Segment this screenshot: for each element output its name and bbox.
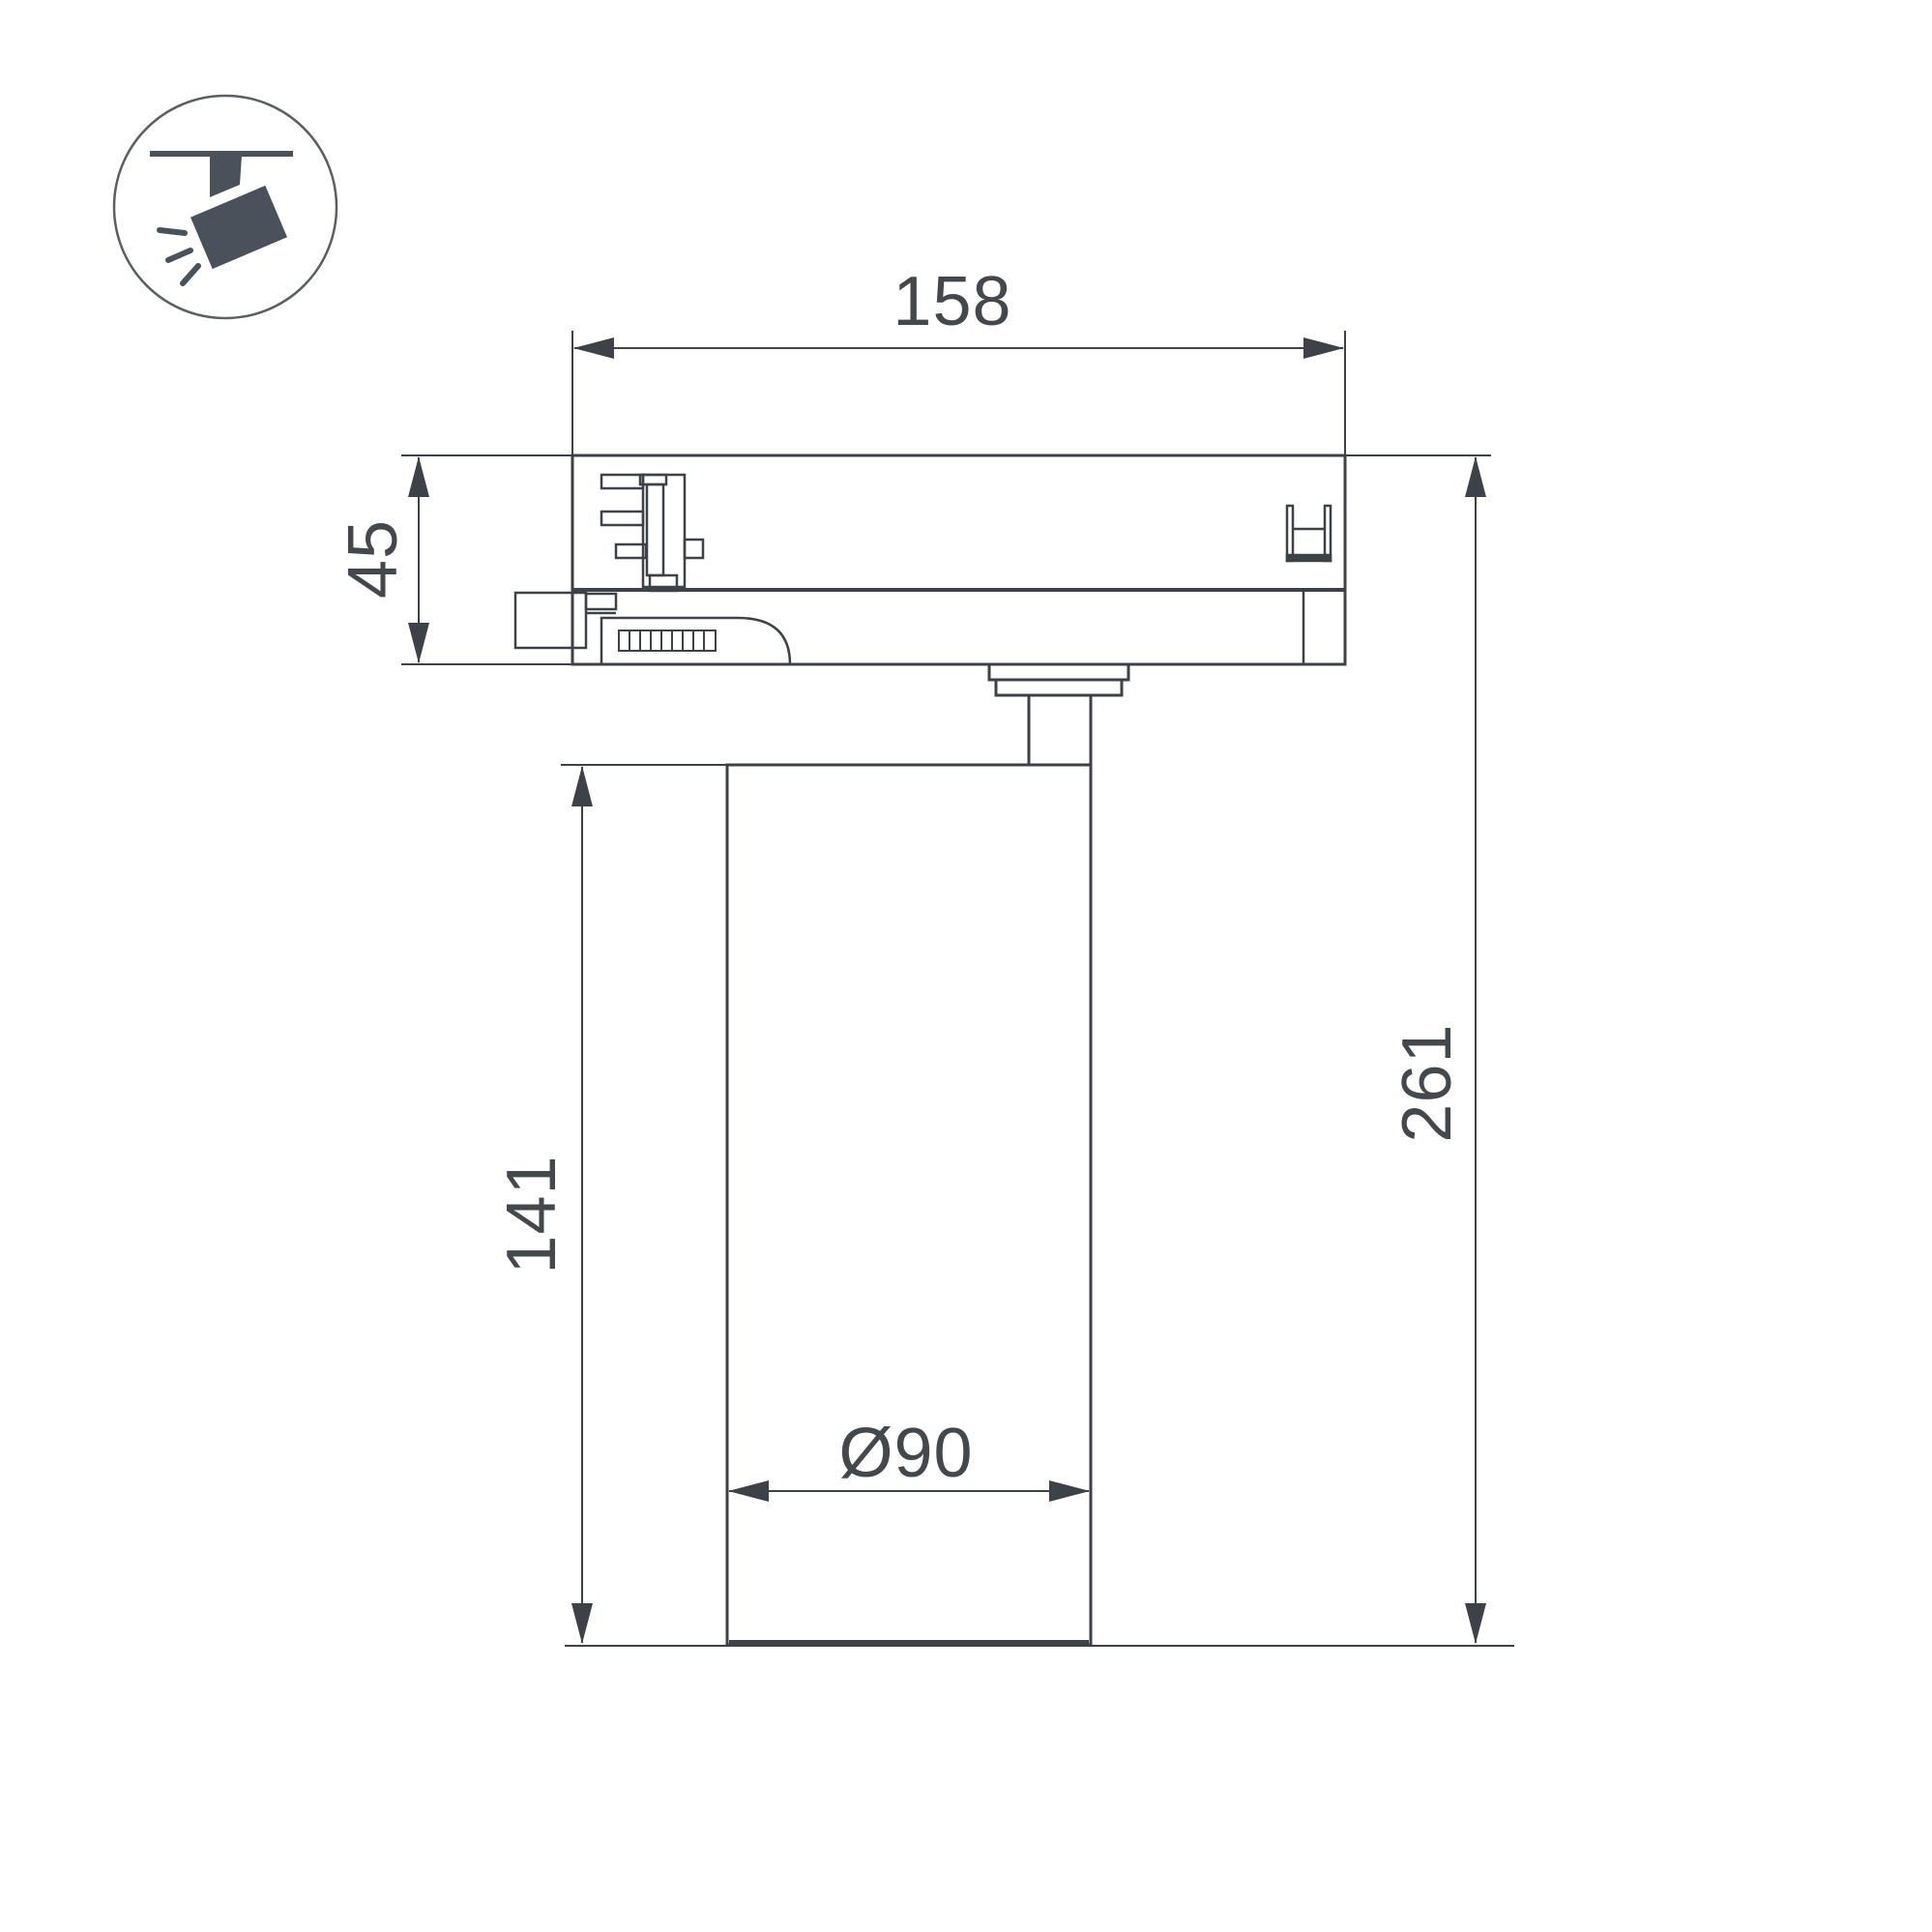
arrowhead-left (573, 337, 614, 359)
contact-prong-middle (601, 512, 643, 525)
arrowhead-right (1303, 337, 1344, 359)
contact-tab-right (685, 540, 703, 558)
arrowhead-down (1465, 1603, 1486, 1644)
contact-rod (647, 484, 663, 575)
mount-bracket (989, 664, 1128, 765)
lamp-body (727, 765, 1091, 1645)
latch-clip (586, 594, 616, 609)
bracket-stem (1029, 695, 1091, 765)
end-clip-left-bar (1287, 506, 1293, 561)
bracket-step-1 (989, 664, 1128, 680)
contact-prong-top (601, 475, 643, 488)
dimension-body-height: 141 (493, 765, 727, 1644)
arrowhead-up (408, 456, 429, 497)
end-clip-bottom-bar (1287, 555, 1331, 561)
end-clip-right-bar (1325, 506, 1331, 561)
lever-grip (619, 630, 716, 651)
dim-label-45: 45 (335, 519, 412, 599)
dimension-overall-height: 261 (1345, 455, 1491, 1644)
dim-label-261: 261 (1389, 1023, 1466, 1142)
bracket-step-2 (996, 680, 1122, 695)
dimension-adapter-width: 158 (572, 263, 1345, 454)
dim-label-diameter: Ø90 (838, 1415, 973, 1492)
dim-label-141: 141 (493, 1155, 571, 1273)
arrowhead-down (408, 623, 429, 663)
track-spotlight-icon (114, 96, 337, 318)
adapter-upper-housing (572, 455, 1345, 590)
latch-block (515, 593, 586, 648)
arrowhead-up (1465, 456, 1486, 497)
drawing-canvas: 158 45 141 261 Ø90 (0, 0, 1932, 1932)
contact-assembly (601, 475, 703, 591)
dim-label-158: 158 (893, 263, 1011, 340)
contact-prong-bottom (616, 544, 646, 558)
arrowhead-up (571, 766, 593, 806)
adapter-lower-band (572, 590, 1345, 664)
arrowhead-down (571, 1603, 593, 1644)
end-clip (1287, 506, 1331, 561)
arrowhead-right (1049, 1480, 1090, 1502)
dimension-body-diameter: Ø90 (728, 1415, 1090, 1502)
arrowhead-left (728, 1480, 769, 1502)
dimension-adapter-height: 45 (335, 455, 572, 664)
technical-drawing: 158 45 141 261 Ø90 (0, 0, 1932, 1932)
lamp-body-outline (727, 765, 1091, 1645)
track-adapter (515, 455, 1345, 664)
